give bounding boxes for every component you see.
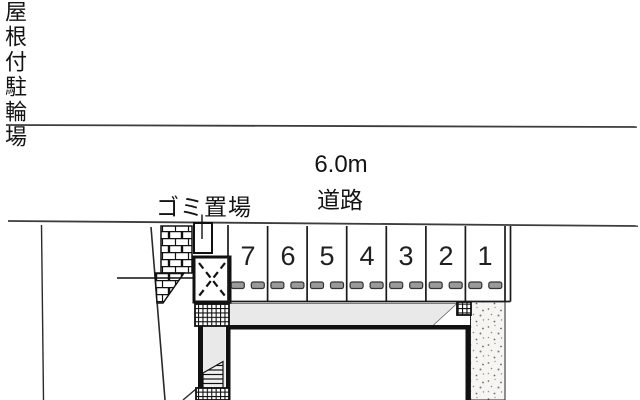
site-plan-diagram: 6.0m 道路 ゴミ置場 屋根付駐輪場 7 6 5 4 3 2 1 xyxy=(0,0,640,400)
brick-wall-upper xyxy=(161,226,192,273)
wheel-stop xyxy=(291,282,304,289)
passage-left-wall xyxy=(198,326,203,388)
wheel-stop xyxy=(469,282,482,289)
stall-number-5: 5 xyxy=(307,241,347,272)
building-outline xyxy=(198,325,471,400)
gravel-strip xyxy=(471,302,506,400)
garbage-area-label: ゴミ置場 xyxy=(154,188,254,222)
wheel-stop xyxy=(231,282,244,289)
brick-wall xyxy=(155,226,192,303)
wheel-stop xyxy=(370,282,383,289)
wheel-stop xyxy=(410,282,423,289)
road-line-upper xyxy=(6,125,637,127)
stall-number-2: 2 xyxy=(426,241,466,272)
building-right-wall xyxy=(466,325,471,400)
stall-number-6: 6 xyxy=(268,241,308,272)
stall-number-1: 1 xyxy=(465,241,505,272)
wheel-stop xyxy=(449,282,462,289)
stall-number-4: 4 xyxy=(347,241,387,272)
fence-block-bottom xyxy=(196,388,229,400)
fence-block-left xyxy=(195,304,229,326)
west-boundary-line xyxy=(42,225,44,400)
road-name-label: 道路 xyxy=(305,181,375,215)
bicycle-shelter-box xyxy=(194,257,230,302)
wheel-stops xyxy=(231,282,502,289)
wheel-stop xyxy=(489,282,502,289)
garbage-area-box xyxy=(194,223,212,253)
wheel-stop xyxy=(271,282,284,289)
wheel-stop xyxy=(429,282,442,289)
stall-number-3: 3 xyxy=(386,241,426,272)
wheel-stop xyxy=(331,282,344,289)
wheel-stop xyxy=(251,282,264,289)
stall-number-7: 7 xyxy=(228,241,268,272)
corner-boundary-line xyxy=(183,389,196,400)
road-width-label: 6.0m xyxy=(306,151,376,179)
wheel-stop xyxy=(350,282,363,289)
wheel-stop xyxy=(311,282,324,289)
road-line-lower xyxy=(8,221,638,226)
wheel-stop xyxy=(390,282,403,289)
building-top-wall xyxy=(226,325,471,330)
driveway-band xyxy=(228,304,457,326)
fence-block-right xyxy=(457,302,471,315)
